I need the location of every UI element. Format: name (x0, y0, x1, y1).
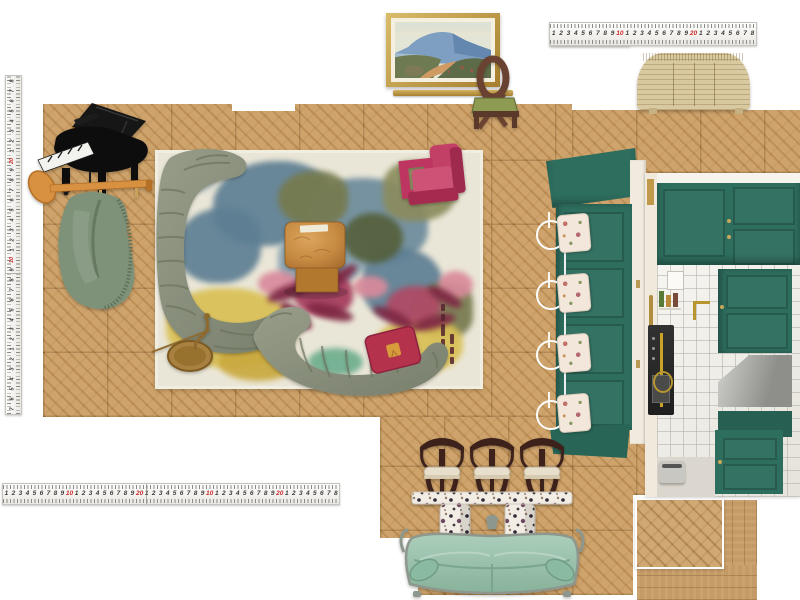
ruler-number: 6 (9, 199, 19, 202)
ruler-number: 3 (297, 491, 304, 498)
ruler-number: 3 (9, 129, 19, 132)
ruler-number: 3 (227, 491, 234, 498)
ruler-number: 8 (262, 491, 269, 498)
moodboard-canvas[interactable]: 876543212098765432110987654321234567 123… (0, 0, 800, 600)
ruler-number: 10 (206, 491, 213, 498)
ruler-number: 2 (80, 491, 87, 498)
ruler-number: 5 (101, 491, 108, 498)
ruler-number: 5 (9, 109, 19, 112)
ruler-number: 9 (199, 491, 206, 498)
ruler-number: 5 (9, 388, 19, 391)
ruler-number: 7 (668, 31, 675, 38)
ruler-number: 9 (9, 268, 19, 271)
ruler-number: 4 (164, 491, 171, 498)
ruler-number: 7 (185, 491, 192, 498)
burl-coffee-table[interactable] (284, 222, 348, 299)
ruler-number: 4 (572, 31, 579, 38)
ruler-number: 20 (9, 157, 19, 163)
ruler-number: 9 (129, 491, 136, 498)
ruler-number: 4 (9, 119, 19, 122)
ruler-number: 7 (594, 31, 601, 38)
ruler-number: 8 (192, 491, 199, 498)
ruler-number: 9 (609, 31, 616, 38)
ruler-number: 1 (550, 31, 557, 38)
ruler-number: 3 (565, 31, 572, 38)
ruler-number: 6 (734, 31, 741, 38)
ruler-number: 1 (624, 31, 631, 38)
ruler-number: 5 (241, 491, 248, 498)
ruler-number: 6 (9, 397, 19, 400)
ruler-number: 7 (9, 288, 19, 291)
ruler-number: 2 (150, 491, 157, 498)
ruler-number: 5 (579, 31, 586, 38)
ruler-number: 4 (94, 491, 101, 498)
ruler-number: 2 (9, 358, 19, 361)
ruler-number: 2 (220, 491, 227, 498)
ruler-number: 7 (741, 31, 748, 38)
ruler-number: 2 (705, 31, 712, 38)
ruler-number: 6 (178, 491, 185, 498)
ruler-number: 5 (171, 491, 178, 498)
ruler-number: 1 (283, 491, 290, 498)
ruler-number: 1 (9, 348, 19, 351)
ruler-number: 5 (9, 308, 19, 311)
ruler-number: 1 (73, 491, 80, 498)
ruler-number: 4 (9, 378, 19, 381)
ruler-number: 3 (17, 491, 24, 498)
ruler-number: 8 (9, 179, 19, 182)
ruler-number: 7 (9, 189, 19, 192)
ruler-number: 6 (660, 31, 667, 38)
measuring-tape-bottom[interactable]: 1234567891012345678920123456789101234567… (2, 483, 340, 505)
ruler-number: 2 (9, 238, 19, 241)
ruler-number: 3 (157, 491, 164, 498)
ruler-number: 8 (332, 491, 339, 498)
measuring-tape-top[interactable]: 123456789101234567892012345678 (549, 22, 757, 46)
furniture-layer (0, 0, 800, 600)
ruler-number: 2 (557, 31, 564, 38)
ruler-number: 7 (325, 491, 332, 498)
ruler-number: 9 (59, 491, 66, 498)
ruler-number: 5 (31, 491, 38, 498)
ruler-number: 6 (38, 491, 45, 498)
ruler-number: 2 (10, 491, 17, 498)
ruler-number: 7 (45, 491, 52, 498)
ruler-number: 4 (9, 318, 19, 321)
ruler-number: 10 (9, 257, 19, 263)
ruler-number: 9 (9, 169, 19, 172)
ruler-number: 20 (690, 31, 697, 38)
ruler-number: 5 (311, 491, 318, 498)
ruler-number: 10 (616, 31, 623, 38)
ruler-number: 8 (9, 79, 19, 82)
ruler-number: 20 (136, 491, 143, 498)
ruler-number: 3 (87, 491, 94, 498)
ruler-number: 1 (213, 491, 220, 498)
ruler-number: 4 (234, 491, 241, 498)
ribbon-back-chair[interactable] (472, 59, 519, 129)
ruler-number: 3 (712, 31, 719, 38)
ruler-number: 3 (9, 368, 19, 371)
ruler-number: 7 (9, 89, 19, 92)
ruler-number: 6 (9, 99, 19, 102)
ruler-number: 6 (318, 491, 325, 498)
ruler-number: 5 (9, 209, 19, 212)
ruler-number: 3 (9, 328, 19, 331)
ruler-number: 4 (9, 219, 19, 222)
ruler-number: 8 (675, 31, 682, 38)
ruler-number: 4 (24, 491, 31, 498)
ruler-number: 2 (631, 31, 638, 38)
ruler-number: 6 (248, 491, 255, 498)
ruler-number: 2 (290, 491, 297, 498)
ruler-number: 6 (587, 31, 594, 38)
ruler-number: 8 (749, 31, 756, 38)
ruler-number: 7 (255, 491, 262, 498)
ruler-number: 6 (9, 298, 19, 301)
measuring-tape-vertical[interactable]: 876543212098765432110987654321234567 (5, 75, 22, 415)
ruler-number: 2 (9, 139, 19, 142)
ruler-number: 4 (646, 31, 653, 38)
ruler-number: 4 (719, 31, 726, 38)
ruler-number: 3 (9, 229, 19, 232)
ruler-number: 7 (9, 407, 19, 410)
ruler-number: 8 (52, 491, 59, 498)
ruler-number: 8 (9, 278, 19, 281)
ruler-number: 8 (122, 491, 129, 498)
ruler-number: 7 (115, 491, 122, 498)
magenta-armchair[interactable] (397, 143, 467, 206)
ruler-number: 8 (602, 31, 609, 38)
vintage-green-sofa[interactable] (401, 515, 583, 598)
ruler-number: 5 (653, 31, 660, 38)
ruler-number: 9 (682, 31, 689, 38)
curved-sofa-bottom[interactable] (254, 307, 448, 396)
coat-rack-with-hanging-chair[interactable] (23, 166, 152, 309)
ruler-number: 1 (9, 248, 19, 251)
ruler-number: 4 (304, 491, 311, 498)
ruler-number: 3 (638, 31, 645, 38)
ruler-number: 5 (727, 31, 734, 38)
ruler-number: 1 (9, 149, 19, 152)
ruler-number: 1 (3, 491, 10, 498)
ruler-number: 20 (276, 491, 283, 498)
ruler-number: 6 (108, 491, 115, 498)
ruler-number: 1 (697, 31, 704, 38)
ruler-number: 10 (66, 491, 73, 498)
ruler-number: 2 (9, 338, 19, 341)
